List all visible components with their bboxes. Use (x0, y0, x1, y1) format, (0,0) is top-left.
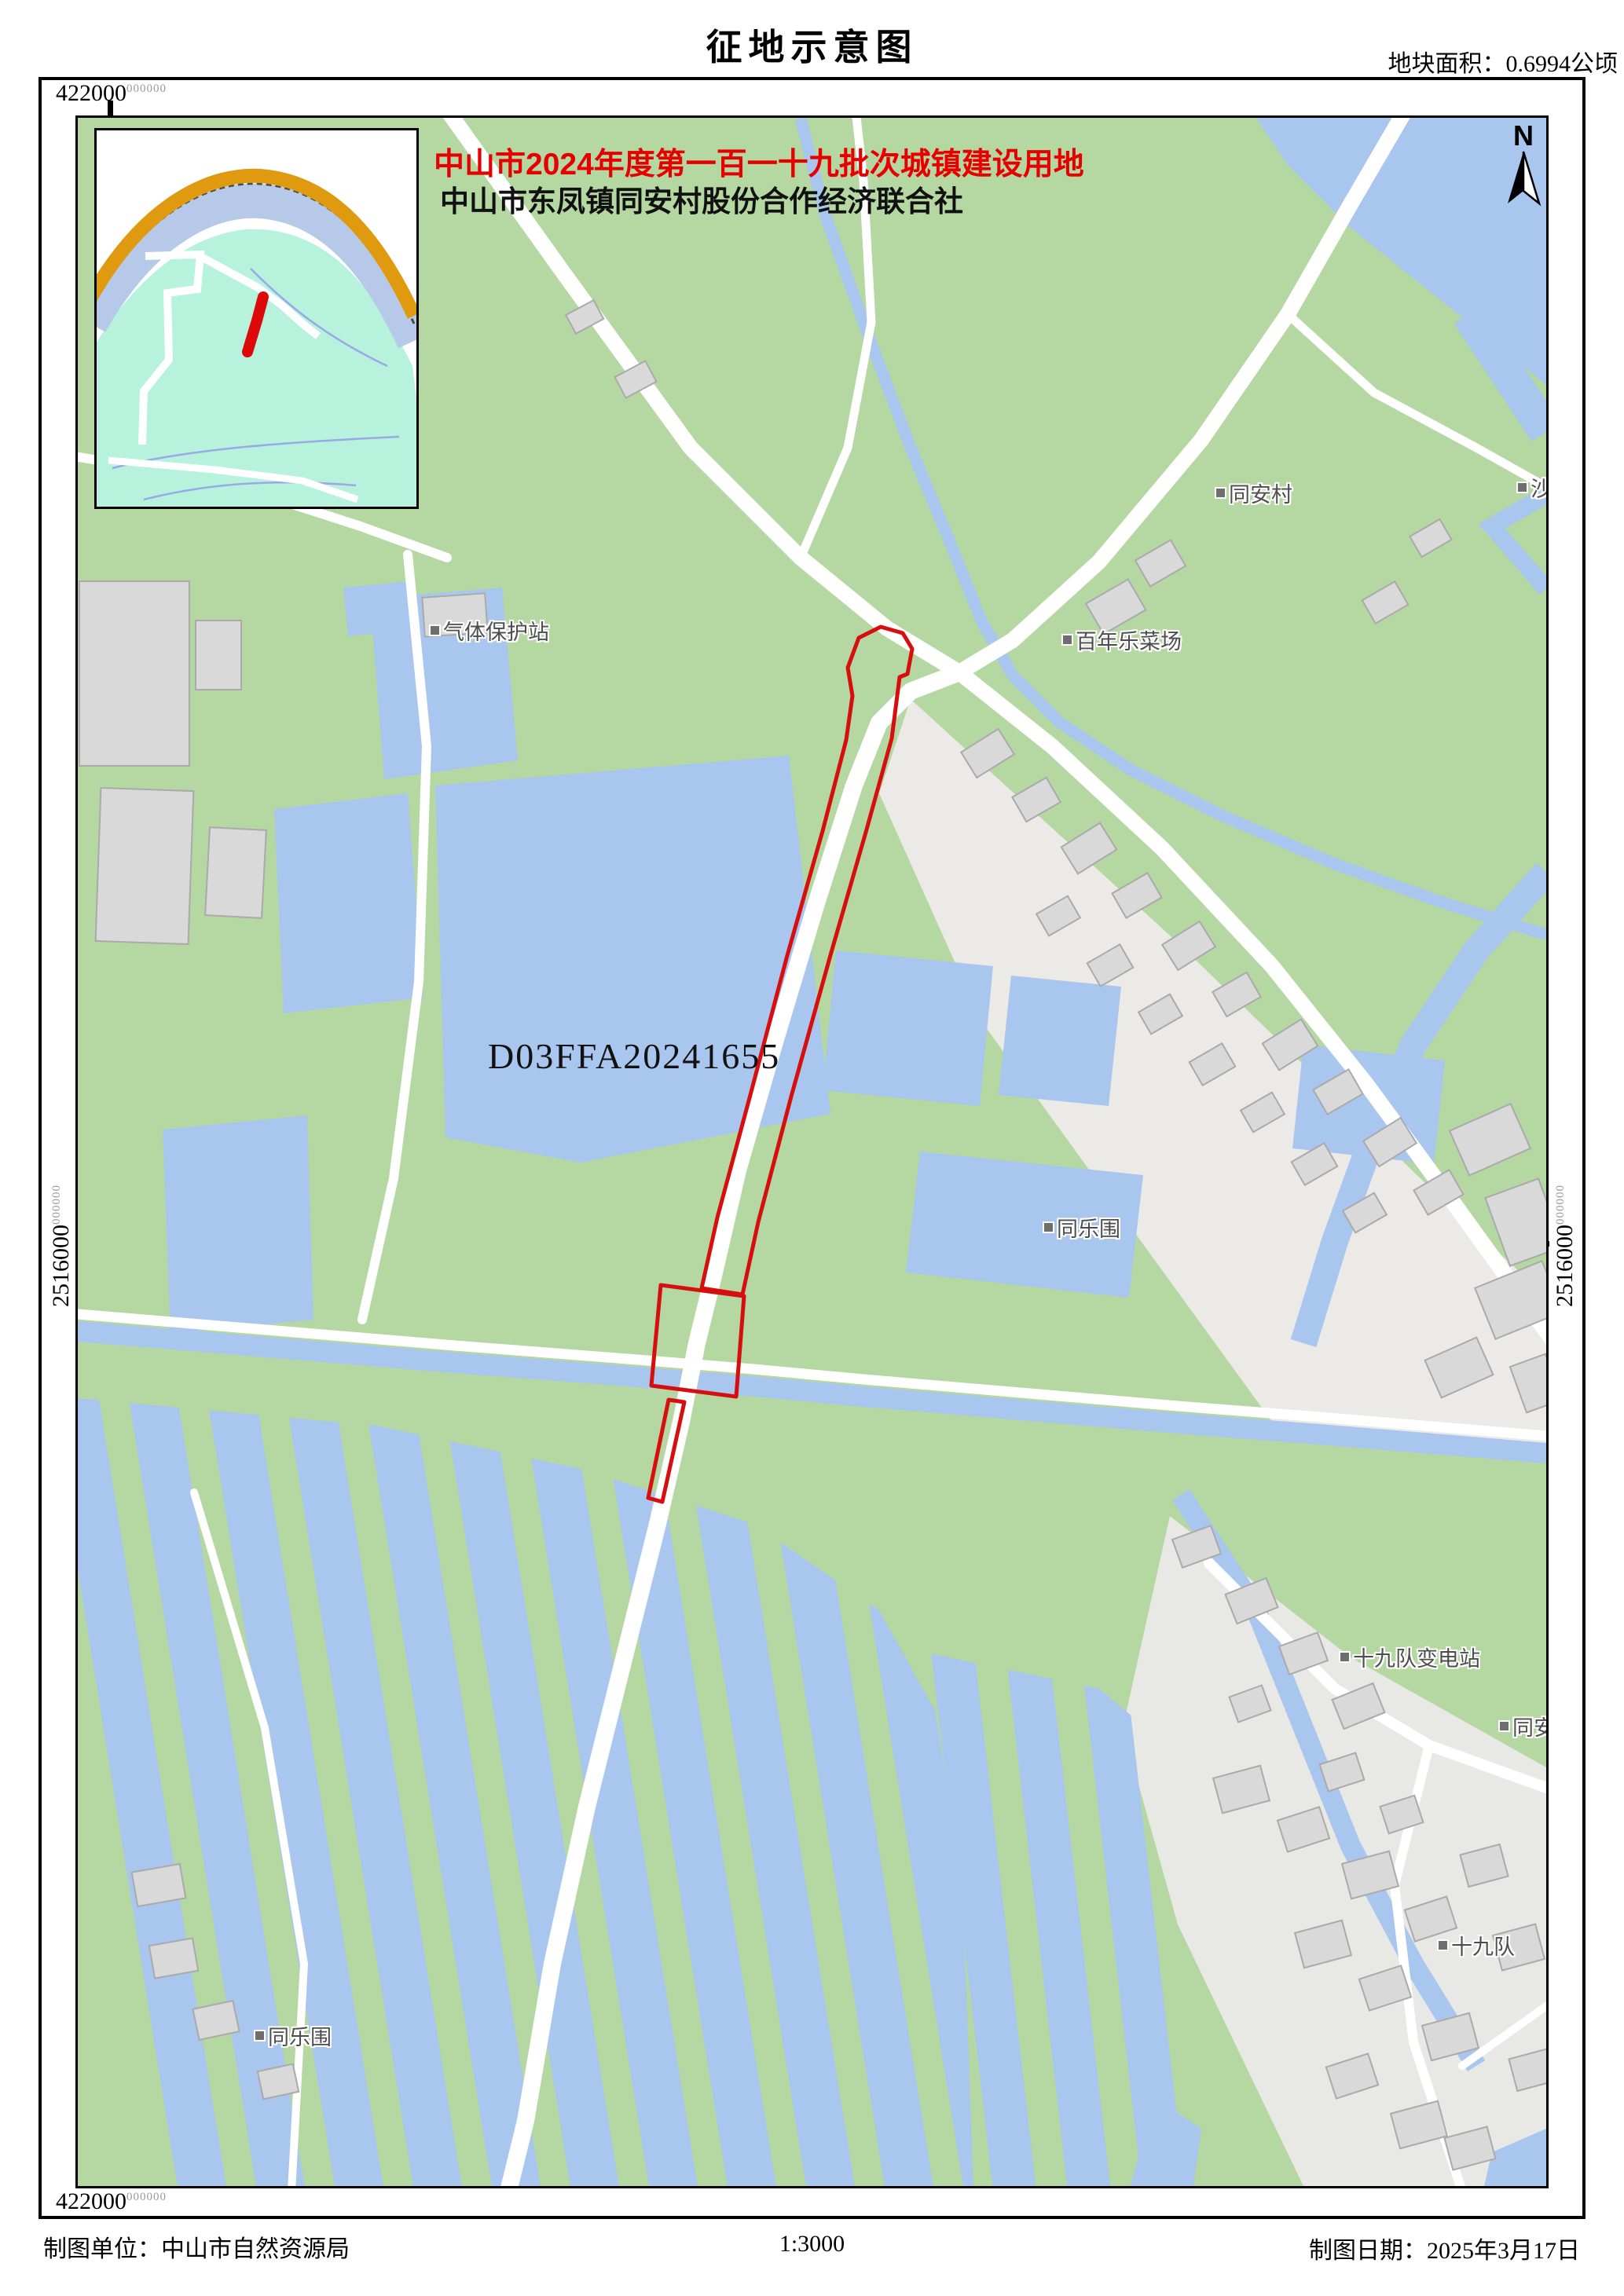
parcel-code-label: D03FFA20241655 (488, 1035, 780, 1077)
organization-text: 中山市东凤镇同安村股份合作经济联合社 (440, 178, 963, 220)
place-marker-icon (1216, 489, 1225, 497)
place-marker-icon (431, 626, 439, 635)
place-label-shijiudui-substation: 十九队变电站 (1340, 1642, 1480, 1672)
map-canvas: 中山市2024年度第一百一十九批次城镇建设用地 中山市东凤镇同安村股份合作经济联… (75, 115, 1549, 2188)
place-marker-icon (255, 2031, 264, 2040)
footer-date: 制图日期：2025年3月17日 (1309, 2231, 1580, 2265)
place-marker-icon (1518, 483, 1527, 492)
inset-graphics (97, 130, 416, 507)
place-marker-icon (1439, 1941, 1447, 1950)
inset-locator-map (94, 128, 419, 509)
coord-decimals: 000000 (126, 2191, 167, 2203)
coord-decimals: 000000 (1554, 1185, 1567, 1225)
north-arrow: N (1497, 122, 1549, 210)
place-label-tonglewei-bottom: 同乐围 (255, 2020, 332, 2051)
coord-decimals: 000000 (126, 82, 167, 95)
place-label-sha: 沙 (1518, 472, 1549, 503)
place-label-shijiudui: 十九队 (1439, 1930, 1515, 1961)
place-marker-icon (1500, 1722, 1509, 1730)
place-label-bainianle-market: 百年乐菜场 (1063, 624, 1182, 655)
place-label-tonglewei-mid: 同乐围 (1044, 1212, 1120, 1243)
coord-label-left: 2516000000000 (48, 1179, 75, 1313)
coord-label-right: 2516000000000 (1552, 1179, 1578, 1313)
place-marker-icon (1044, 1223, 1053, 1232)
north-label: N (1497, 122, 1549, 150)
plot-area-note: 地块面积：0.6994公顷 (1388, 44, 1619, 79)
coord-label-bottom-left: 422000000000 (56, 2188, 167, 2215)
place-label-qiti-station: 气体保护站 (431, 615, 549, 646)
place-label-tongan-edge: 同安 (1500, 1711, 1549, 1741)
north-arrow-icon (1497, 150, 1549, 208)
place-label-tongancun: 同安村 (1216, 478, 1292, 508)
coord-decimals: 000000 (50, 1185, 63, 1225)
place-marker-icon (1063, 635, 1072, 644)
page-title: 征地示意图 (0, 19, 1624, 71)
place-marker-icon (1340, 1653, 1349, 1661)
map-sheet: 征地示意图 地块面积：0.6994公顷 422000000000 4220000… (0, 0, 1624, 2296)
